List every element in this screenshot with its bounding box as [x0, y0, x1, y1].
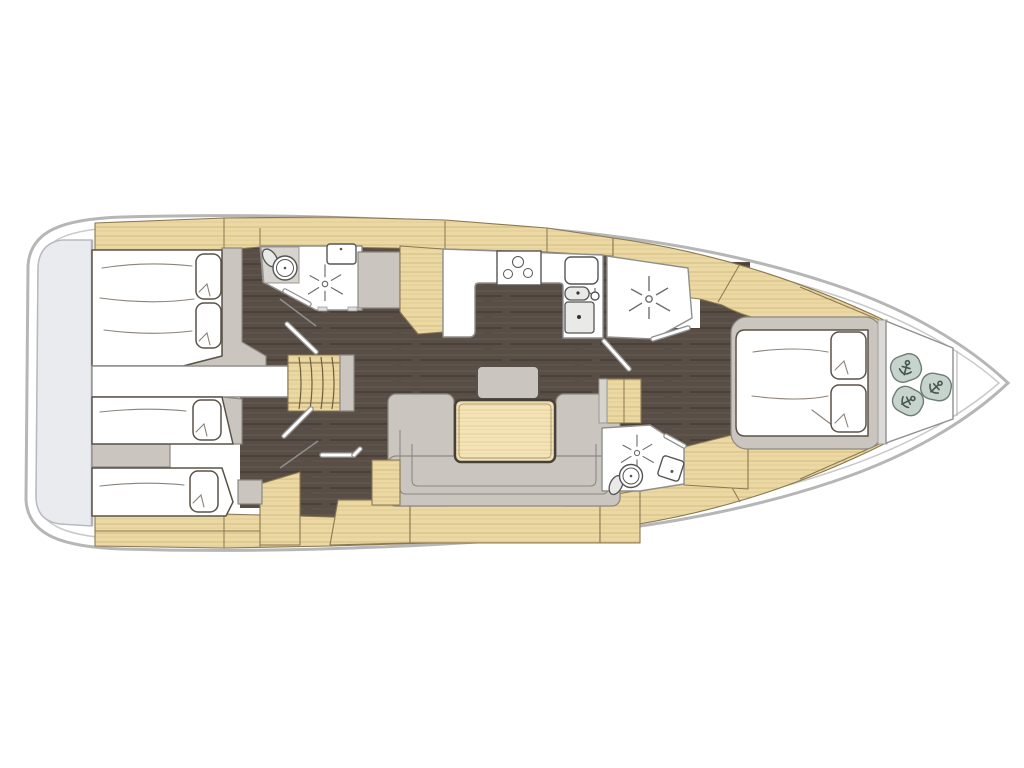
owners-cabin: [731, 317, 887, 449]
aft-cabin-port: [92, 248, 266, 371]
stool: [477, 366, 539, 399]
pillow: [831, 332, 866, 379]
berth-wedge: [238, 480, 262, 504]
wet-locker: [358, 252, 400, 308]
swim-platform: [36, 240, 92, 526]
settee-bench: [388, 456, 620, 506]
side-cabinet: [372, 460, 400, 505]
pillow: [831, 385, 866, 432]
companionway-stairs[interactable]: [288, 355, 354, 411]
yacht-floor-plan: [0, 0, 1024, 768]
companionway-landing: [340, 355, 354, 411]
faucet-icon: [591, 292, 599, 300]
sink-icon: [327, 244, 356, 264]
salon-table: [455, 400, 555, 462]
aft-corridor: [92, 366, 288, 397]
fridge-icon: [565, 257, 598, 284]
berth-divider: [92, 444, 170, 467]
